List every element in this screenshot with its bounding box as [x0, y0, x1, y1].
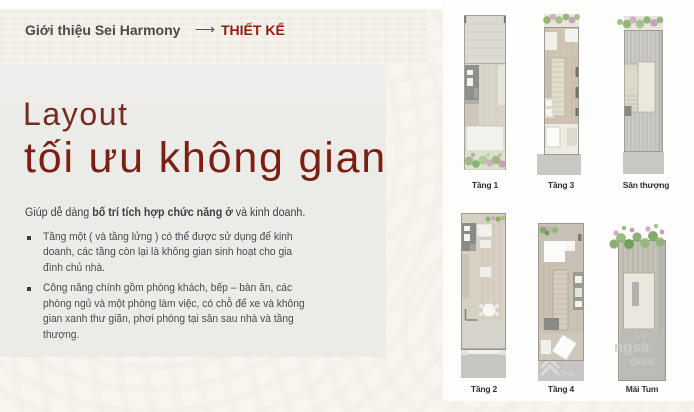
- svg-text:bat: bat: [561, 368, 575, 378]
- svg-text:ngsà: ngsà: [614, 339, 650, 356]
- svg-text:Guru: Guru: [630, 357, 654, 368]
